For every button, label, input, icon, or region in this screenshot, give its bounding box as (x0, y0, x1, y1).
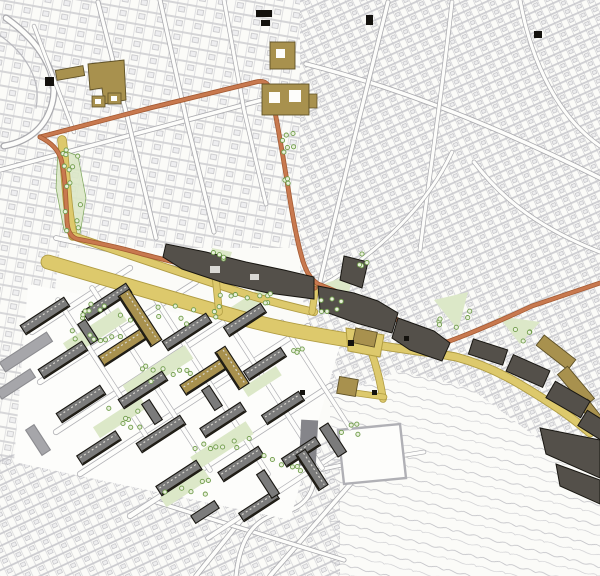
masterplan-map (0, 0, 600, 576)
map-canvas (0, 0, 600, 576)
